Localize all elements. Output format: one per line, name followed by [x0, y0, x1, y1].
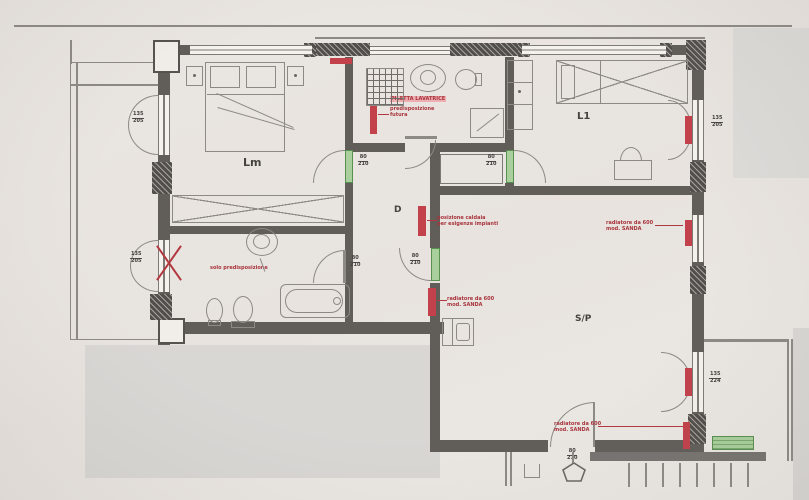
pier-right-mid: [690, 162, 706, 192]
pier-left-mid: [152, 162, 172, 194]
railing-tick: [713, 463, 715, 487]
window-living-right: [692, 215, 704, 262]
site-boundary-line: [14, 25, 792, 27]
window-l1-top: [522, 45, 666, 55]
bed-divider: [600, 60, 601, 104]
balcony-left-stub: [70, 40, 72, 64]
cabinet-column: [507, 60, 533, 130]
room-label-lm: Lm: [243, 156, 261, 169]
railing-tick: [696, 463, 698, 487]
frenchwindow-lm-left: [158, 95, 170, 155]
annotation-leader: [655, 225, 683, 226]
pier-right-bottom: [688, 414, 706, 444]
dim-door-bath2: 80 210: [350, 256, 360, 268]
bidet-base: [208, 320, 221, 326]
door-swing-arc-l1: [514, 150, 546, 183]
door-swing-arc-lm: [313, 150, 345, 183]
dim-h: 210: [358, 162, 368, 168]
entry-marker-icon: [562, 462, 586, 482]
window-lm-top: [190, 45, 312, 55]
wall-l1-left-c: [505, 183, 514, 189]
annotation-living-right: radiatore da 600 mod. SANDA: [606, 220, 653, 232]
dim-h: 210: [350, 263, 360, 269]
radiator-marker: [370, 104, 377, 134]
entry-marker-stem: [572, 452, 574, 463]
railing-tick: [747, 463, 749, 487]
radiator-marker: [428, 288, 436, 316]
bed-pillow: [561, 65, 575, 99]
railing-tick: [628, 463, 630, 487]
dim-h: 224: [709, 379, 721, 385]
wardrobe: [172, 195, 344, 223]
balcony-left-inner-edge: [76, 63, 78, 339]
annotation-line: mod. SANDA: [447, 302, 494, 308]
dim-h: 210: [486, 162, 496, 168]
bed-pillow: [246, 66, 276, 88]
sink-basin: [253, 234, 270, 249]
radiator-marker: [685, 116, 692, 144]
door-leaf-lm-green: [345, 150, 353, 183]
annotation-living-bottom: radiatore da 600 mod. SANDA: [554, 421, 601, 433]
nightstand-knob: [193, 74, 196, 77]
door-swing-arc-bath2: [313, 250, 345, 283]
radiator-marker: [330, 58, 352, 64]
room-label-l1: L1: [577, 111, 590, 122]
annotation-living-left: radiatore da 600 mod. SANDA: [447, 296, 494, 308]
frenchdoor-living-right: [692, 352, 704, 412]
nightstand-knob: [294, 74, 297, 77]
sink-basin: [420, 70, 436, 85]
toilet-tank: [475, 73, 482, 86]
frenchwindow-l1-right: [692, 100, 704, 160]
wall-corridor-right-a: [430, 143, 440, 248]
dim-h: 205: [711, 123, 723, 129]
pier-top-right: [686, 40, 706, 70]
annotation-line: mod. SANDA: [606, 226, 653, 232]
shower: [366, 68, 404, 106]
dim-window-left-lower: 135 205: [130, 252, 142, 264]
dim-door-lm: 80 210: [358, 155, 368, 167]
railing-tick: [679, 463, 681, 487]
wall-top-hatched-b: [450, 43, 522, 56]
balcony-br-top-edge: [704, 339, 789, 342]
unit-divider: [452, 318, 453, 346]
room-label-corridor: D: [394, 205, 401, 215]
bed-pillow: [210, 66, 240, 88]
upper-slab-line: [315, 37, 705, 39]
wall-bath1-bottom-a: [345, 143, 405, 152]
toilet: [455, 69, 477, 90]
balcony-br-floor-band: [590, 452, 766, 461]
railing-tick: [730, 463, 732, 487]
annotation-line: solo predisposizione: [210, 265, 268, 271]
wall-bottom-a: [430, 440, 548, 452]
dim-window-right-l1: 135 205: [711, 116, 723, 128]
radiator-marker: [685, 368, 692, 396]
mask-top-right: [733, 28, 809, 178]
pier-left-low: [150, 294, 172, 320]
dim-window-left-upper: 135 205: [132, 112, 144, 124]
pier-top-left: [153, 40, 180, 73]
wall-living-left: [430, 330, 440, 452]
cabinet-shelf-line: [507, 104, 533, 105]
annotation-line: per esigenze impianti: [437, 221, 498, 227]
entry-side-line: [510, 452, 512, 486]
radiator-marker: [685, 220, 692, 246]
annotation-line: futura: [390, 112, 446, 118]
wall-bath1-bottom-b: [437, 143, 510, 152]
pier-right-low: [690, 266, 706, 294]
wall-l1-left-b: [505, 143, 514, 150]
dim-h: 205: [132, 119, 144, 125]
entry-step: [524, 464, 540, 478]
balcony-br-right-edge-inner: [791, 339, 793, 461]
window-bath1-top: [370, 46, 450, 55]
railing-tick: [645, 463, 647, 487]
planter-green: [712, 436, 754, 450]
wall-top-hatched-a: [312, 43, 370, 56]
unit-basin: [456, 323, 470, 341]
toilet-tank: [231, 321, 255, 328]
door-leaf-bath2: [343, 250, 346, 283]
cabinet-knob: [518, 90, 521, 93]
mask-right-strip: [793, 328, 809, 500]
door-leaf-l1-green: [506, 150, 514, 183]
room-label-living: S/P: [575, 314, 591, 324]
dim-door-living: 80 210: [410, 254, 420, 266]
wall-living-top: [438, 186, 704, 195]
annotation-leader: [437, 300, 447, 301]
cabinet-shelf-line: [507, 82, 533, 83]
mask-bottom-left: [85, 345, 440, 478]
pier-bottom-left: [158, 318, 185, 344]
toilet: [233, 296, 253, 323]
annotation-bath2: solo predisposizione: [210, 265, 268, 271]
chair: [620, 147, 642, 161]
annotation-leader: [598, 426, 683, 427]
annotation-leader: [427, 220, 437, 221]
railing-tick: [662, 463, 664, 487]
bathtub-drain: [333, 297, 341, 305]
dim-h: 205: [130, 259, 142, 265]
dim-h: 210: [410, 261, 420, 267]
bed-single-crossed: [556, 60, 688, 104]
radiator-marker: [683, 422, 690, 449]
annotation-line: mod. SANDA: [554, 427, 601, 433]
door-leaf-living-green: [431, 248, 440, 281]
wall-bottom-left-wing: [158, 322, 444, 334]
balcony-br-right-edge: [787, 339, 789, 461]
annotation-leader: [378, 114, 389, 115]
annotation-corridor: posizione caldaia per esigenze impianti: [437, 215, 498, 227]
radiator-marker: [418, 206, 426, 236]
dim-door-l1: 80 210: [486, 155, 496, 167]
balcony-left-inner-line: [70, 84, 160, 86]
dim-frenchdoor-right: 135 224: [709, 372, 721, 384]
floor-plan: PILETTA LAVATRICE predisposizione futura…: [0, 0, 809, 500]
entry-side-line: [505, 452, 507, 486]
desk: [614, 160, 652, 180]
wall-corridor-left-a: [345, 57, 353, 150]
door-leaf-bath1: [405, 136, 437, 139]
